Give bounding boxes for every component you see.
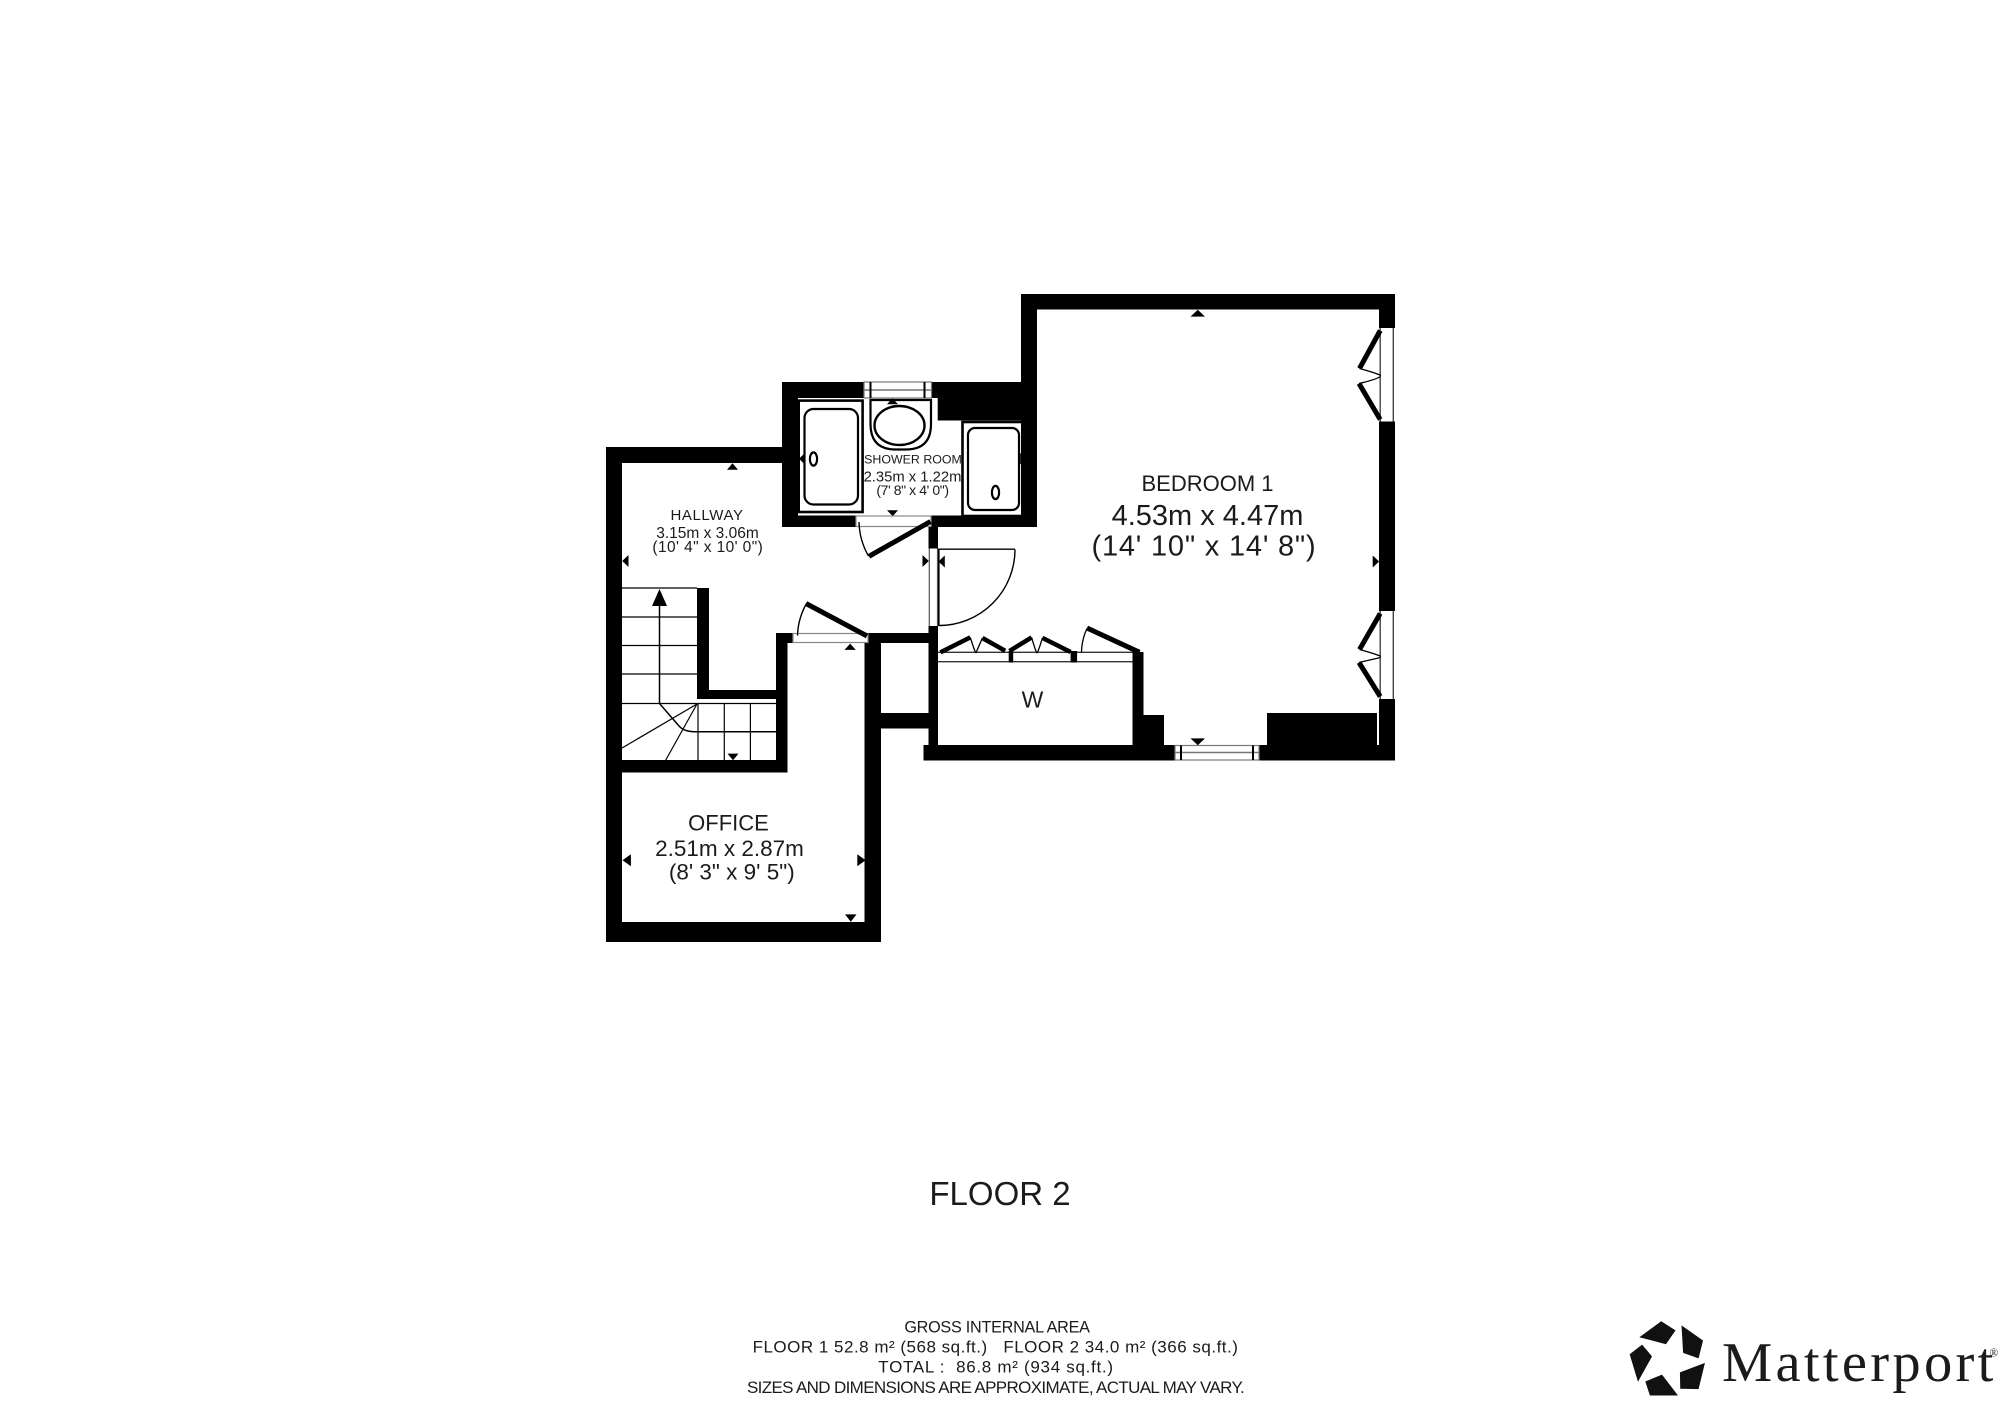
svg-text:W: W	[1022, 687, 1044, 713]
svg-text:(10' 4" x 10' 0"): (10' 4" x 10' 0")	[652, 539, 763, 556]
svg-text:(7' 8" x 4' 0"): (7' 8" x 4' 0")	[876, 482, 948, 498]
svg-text:SHOWER ROOM: SHOWER ROOM	[864, 453, 962, 467]
svg-text:OFFICE: OFFICE	[688, 811, 769, 836]
svg-text:(8' 3" x 9' 5"): (8' 3" x 9' 5")	[669, 860, 795, 885]
svg-text:2.51m x 2.87m: 2.51m x 2.87m	[655, 836, 804, 861]
svg-text:Matterport: Matterport	[1722, 1332, 1997, 1394]
svg-text:4.53m x 4.47m: 4.53m x 4.47m	[1112, 500, 1304, 532]
svg-text:BEDROOM 1: BEDROOM 1	[1141, 471, 1273, 496]
svg-text:GROSS INTERNAL AREA: GROSS INTERNAL AREA	[904, 1319, 1090, 1337]
svg-text:TOTAL : 86.8 m² (934 sq.ft.): TOTAL : 86.8 m² (934 sq.ft.)	[878, 1358, 1113, 1377]
svg-text:®: ®	[1990, 1348, 1999, 1360]
svg-text:HALLWAY: HALLWAY	[670, 507, 743, 524]
svg-text:(14' 10" x 14' 8"): (14' 10" x 14' 8")	[1091, 530, 1316, 562]
svg-text:FLOOR 2: FLOOR 2	[929, 1175, 1070, 1212]
svg-text:SIZES AND DIMENSIONS ARE APPRO: SIZES AND DIMENSIONS ARE APPROXIMATE, AC…	[747, 1378, 1244, 1397]
svg-text:FLOOR 1 52.8 m² (568 sq.ft.): FLOOR 1 52.8 m² (568 sq.ft.) FLOOR 2 34.…	[753, 1338, 1239, 1357]
